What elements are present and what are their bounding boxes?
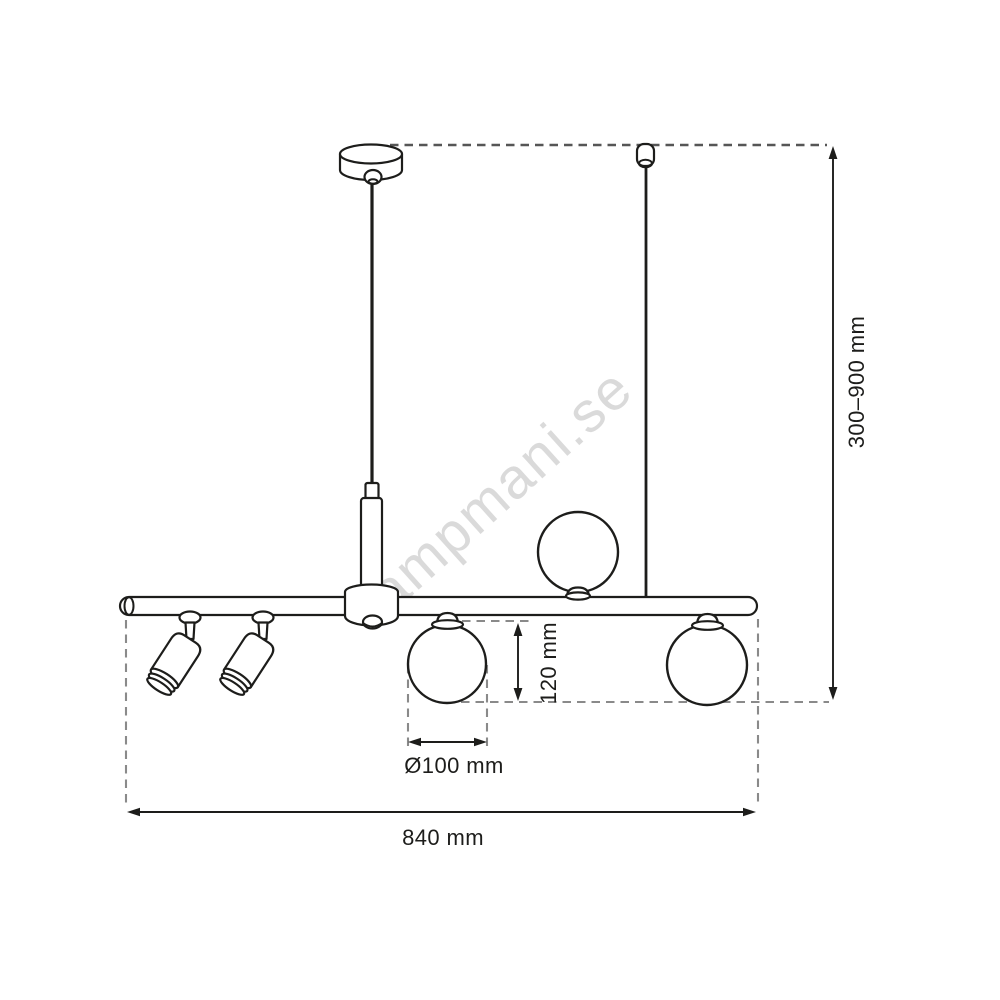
diagram-canvas: lampmani.se 300–900 mm 120 mm Ø100 mm [0, 0, 1000, 1000]
dimension-fixture-width: 840 mm [127, 808, 756, 850]
globe-sphere [538, 512, 618, 592]
canopy-assembly [340, 145, 402, 485]
dimension-suspension-height: 300–900 mm [829, 146, 869, 700]
spotlight-left [144, 612, 204, 699]
globe-sphere [408, 625, 486, 703]
stem-tube [361, 498, 382, 594]
arrowhead-right-icon [474, 738, 487, 746]
dimension-label-globe-drop: 120 mm [536, 622, 561, 704]
globe-socket-flange [432, 620, 463, 629]
dimension-label-fixture-width: 840 mm [402, 825, 484, 850]
canopy-cord-grip [365, 170, 382, 184]
arrowhead-left-icon [127, 808, 140, 816]
glass-globe-top [538, 512, 618, 600]
arrowhead-up-icon [829, 146, 838, 159]
spotlight-right [217, 612, 277, 699]
dimension-globe-diameter: Ø100 mm [404, 738, 503, 778]
spotlight-head [144, 630, 204, 698]
product-dimension-diagram: lampmani.se 300–900 mm 120 mm Ø100 mm [0, 0, 1000, 1000]
dimension-globe-drop: 120 mm [514, 622, 561, 704]
arrowhead-down-icon [829, 687, 838, 700]
canopy-top [340, 145, 402, 164]
bar-body [120, 597, 757, 615]
arrowhead-right-icon [743, 808, 756, 816]
arrowhead-up-icon [514, 623, 523, 636]
globe-sphere [667, 625, 747, 705]
stem-connector [366, 483, 379, 499]
glass-globe-bottom-right [667, 614, 747, 705]
globe-socket-flange [566, 592, 590, 599]
dimension-label-suspension-height: 300–900 mm [844, 316, 869, 448]
arrowhead-left-icon [408, 738, 421, 746]
suspension-cable-assembly [637, 144, 654, 597]
center-hub [345, 585, 398, 629]
dimension-label-globe-diameter: Ø100 mm [404, 753, 503, 778]
glass-globe-bottom-left [408, 613, 486, 703]
spotlight-head [217, 630, 277, 698]
fixture-bar [120, 597, 757, 615]
arrowhead-down-icon [514, 688, 523, 701]
stem-assembly [361, 483, 382, 594]
globe-socket-flange [692, 621, 723, 630]
